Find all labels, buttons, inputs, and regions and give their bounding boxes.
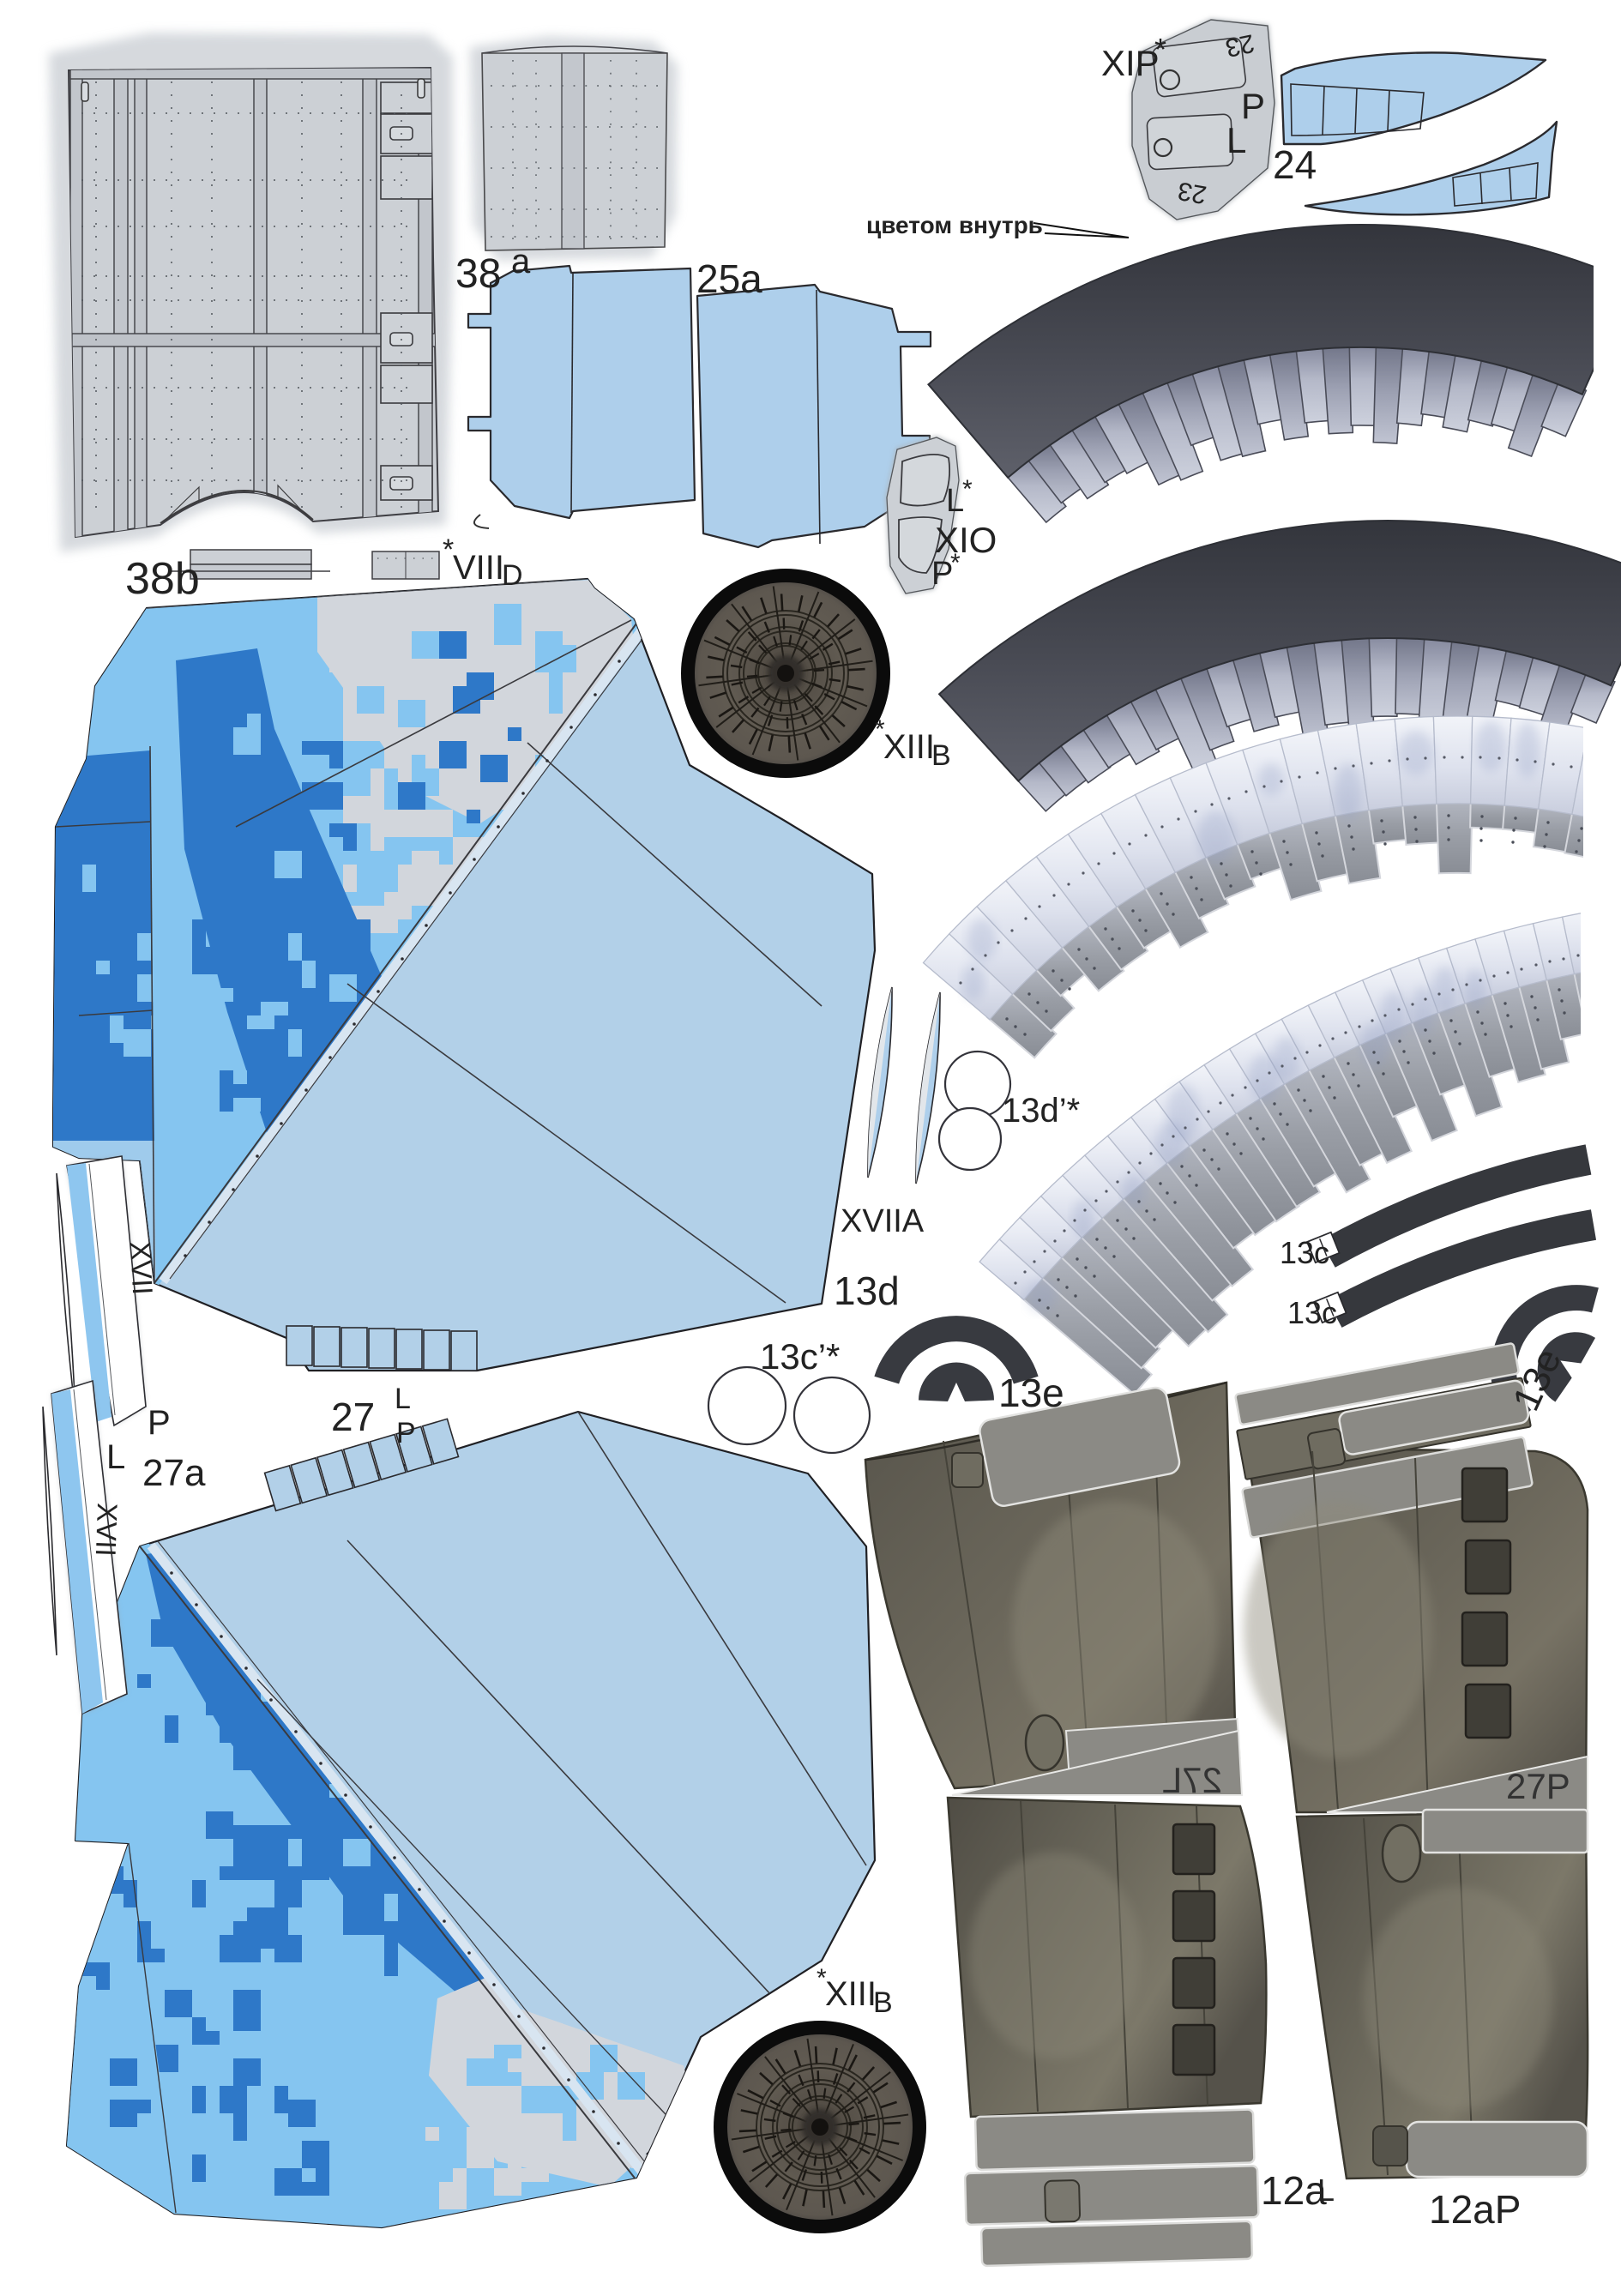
svg-text:*: * [1154,32,1166,67]
svg-text:B: B [873,1986,893,2019]
svg-text:23: 23 [1176,176,1209,208]
svg-text:XIO: XIO [935,520,997,560]
svg-text:13d’*: 13d’* [1002,1092,1080,1130]
svg-text:13c: 13c [1280,1235,1329,1270]
svg-text:25a: 25a [696,256,762,301]
svg-text:XIII: XIII [825,1975,877,2013]
svg-text:VIII: VIII [453,549,504,587]
svg-text:XVII: XVII [124,1240,159,1295]
svg-text:XIII: XIII [883,728,935,766]
svg-text:P: P [148,1404,171,1442]
svg-text:*: * [950,549,961,577]
svg-text:цветом внутрь: цветом внутрь [866,212,1043,238]
svg-text:38b: 38b [125,554,200,604]
svg-text:27a: 27a [142,1452,206,1494]
svg-text:L: L [946,483,964,519]
svg-text:XVIIA: XVIIA [841,1203,925,1239]
svg-text:13c’*: 13c’* [760,1336,840,1377]
svg-text:13c: 13c [1287,1295,1337,1330]
svg-text:XVII: XVII [90,1503,124,1558]
svg-text:XIP: XIP [1101,43,1160,83]
svg-text:L: L [395,1383,411,1415]
svg-text:23: 23 [1223,28,1257,62]
svg-text:38: 38 [455,251,501,297]
svg-text:B: B [931,739,951,772]
svg-text:27: 27 [331,1395,375,1439]
svg-text:D: D [502,559,523,592]
svg-text:*: * [962,475,973,503]
svg-text:P: P [396,1417,416,1449]
svg-text:a: a [511,243,531,280]
svg-text:13e: 13e [998,1371,1064,1415]
svg-text:24: 24 [1273,142,1317,187]
svg-text:27L: 27L [1162,1760,1222,1800]
svg-text:L: L [106,1438,125,1476]
svg-text:13d: 13d [834,1269,900,1313]
svg-text:L: L [1317,2172,1335,2208]
svg-text:27P: 27P [1506,1766,1570,1806]
svg-text:L: L [1226,120,1246,160]
svg-text:12aP: 12aP [1429,2187,1521,2232]
